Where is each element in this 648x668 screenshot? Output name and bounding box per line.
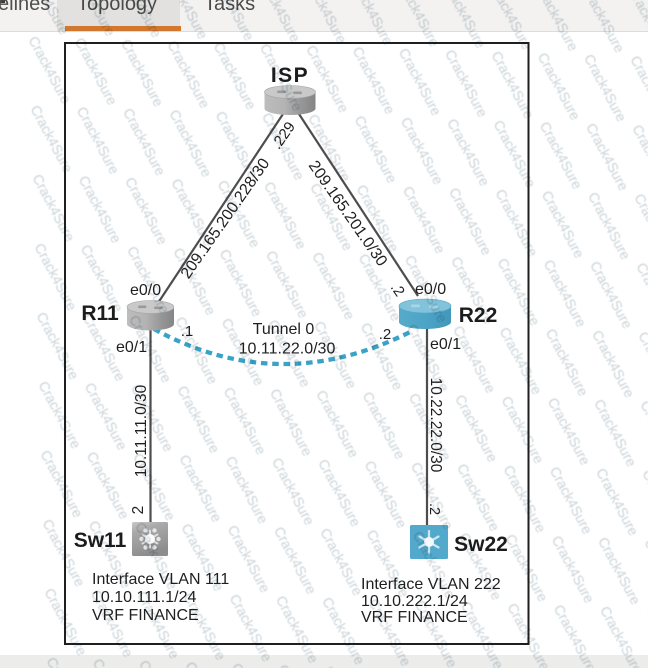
svg-text:Crack4Sure: Crack4Sure	[35, 378, 84, 451]
svg-text:Crack4Sure: Crack4Sure	[321, 663, 370, 668]
svg-text:Crack4Sure: Crack4Sure	[488, 48, 537, 121]
svg-text:Crack4Sure: Crack4Sure	[408, 459, 457, 532]
svg-text:Crack4Sure: Crack4Sure	[124, 243, 173, 316]
svg-text:Crack4Sure: Crack4Sure	[211, 39, 260, 112]
svg-text:Crack4Sure: Crack4Sure	[593, 465, 642, 538]
svg-text:Crack4Sure: Crack4Sure	[360, 389, 409, 462]
svg-text:Crack4Sure: Crack4Sure	[257, 41, 306, 114]
svg-text:Crack4Sure: Crack4Sure	[352, 113, 401, 186]
svg-text:Crack4Sure: Crack4Sure	[400, 183, 449, 256]
svg-text:Crack4Sure: Crack4Sure	[178, 521, 227, 594]
svg-text:Crack4Sure: Crack4Sure	[358, 320, 407, 393]
svg-text:Crack4Sure: Crack4Sure	[261, 179, 310, 252]
svg-text:Crack4Sure: Crack4Sure	[33, 309, 82, 382]
svg-text:Crack4Sure: Crack4Sure	[162, 0, 211, 42]
svg-text:Crack4Sure: Crack4Sure	[311, 318, 360, 391]
svg-text:Crack4Sure: Crack4Sure	[116, 0, 165, 40]
svg-text:Crack4Sure: Crack4Sure	[72, 35, 121, 108]
svg-text:Crack4Sure: Crack4Sure	[500, 462, 549, 535]
svg-text:Crack4Sure: Crack4Sure	[255, 0, 304, 45]
svg-text:Crack4Sure: Crack4Sure	[551, 602, 600, 668]
svg-text:Crack4Sure: Crack4Sure	[225, 522, 274, 595]
svg-text:Crack4Sure: Crack4Sure	[134, 588, 183, 661]
svg-text:Crack4Sure: Crack4Sure	[267, 386, 316, 459]
svg-text:Crack4Sure: Crack4Sure	[404, 321, 453, 394]
svg-text:Crack4Sure: Crack4Sure	[537, 119, 586, 192]
svg-text:Crack4Sure: Crack4Sure	[74, 104, 123, 177]
svg-text:Crack4Sure: Crack4Sure	[452, 392, 501, 465]
svg-text:Crack4Sure: Crack4Sure	[643, 605, 648, 668]
svg-text:Crack4Sure: Crack4Sure	[303, 42, 352, 115]
svg-text:Crack4Sure: Crack4Sure	[180, 590, 229, 663]
svg-text:Crack4Sure: Crack4Sure	[27, 102, 76, 175]
svg-text:Crack4Sure: Crack4Sure	[80, 311, 129, 384]
svg-text:Crack4Sure: Crack4Sure	[587, 258, 636, 331]
svg-text:Crack4Sure: Crack4Sure	[456, 530, 505, 603]
svg-text:Crack4Sure: Crack4Sure	[394, 0, 443, 49]
svg-text:Crack4Sure: Crack4Sure	[492, 186, 541, 259]
svg-text:Crack4Sure: Crack4Sure	[213, 108, 262, 181]
svg-text:Crack4Sure: Crack4Sure	[70, 0, 119, 39]
svg-text:Crack4Sure: Crack4Sure	[319, 594, 368, 667]
svg-text:Crack4Sure: Crack4Sure	[164, 38, 213, 111]
svg-text:Crack4Sure: Crack4Sure	[263, 248, 312, 321]
svg-text:Crack4Sure: Crack4Sure	[88, 587, 137, 660]
svg-text:Crack4Sure: Crack4Sure	[301, 0, 350, 46]
svg-text:Crack4Sure: Crack4Sure	[269, 455, 318, 528]
svg-text:Crack4Sure: Crack4Sure	[498, 393, 547, 466]
svg-text:Crack4Sure: Crack4Sure	[307, 180, 356, 253]
svg-text:Crack4Sure: Crack4Sure	[627, 53, 648, 126]
svg-text:Crack4Sure: Crack4Sure	[31, 240, 80, 313]
svg-text:Crack4Sure: Crack4Sure	[39, 516, 88, 589]
svg-text:Crack4Sure: Crack4Sure	[366, 596, 415, 668]
svg-text:Crack4Sure: Crack4Sure	[86, 518, 135, 591]
svg-text:Crack4Sure: Crack4Sure	[172, 314, 221, 387]
svg-text:Crack4Sure: Crack4Sure	[174, 383, 223, 456]
svg-text:Crack4Sure: Crack4Sure	[219, 315, 268, 388]
svg-text:Crack4Sure: Crack4Sure	[265, 317, 314, 390]
svg-text:Crack4Sure: Crack4Sure	[442, 47, 491, 120]
svg-text:Crack4Sure: Crack4Sure	[215, 177, 264, 250]
svg-text:Crack4Sure: Crack4Sure	[494, 255, 543, 328]
svg-text:Crack4Sure: Crack4Sure	[547, 464, 596, 537]
svg-text:Crack4Sure: Crack4Sure	[448, 254, 497, 327]
svg-text:Crack4Sure: Crack4Sure	[126, 312, 175, 385]
svg-text:Crack4Sure: Crack4Sure	[132, 519, 181, 592]
svg-text:Crack4Sure: Crack4Sure	[29, 171, 78, 244]
svg-text:Crack4Sure: Crack4Sure	[76, 173, 125, 246]
svg-text:Crack4Sure: Crack4Sure	[595, 534, 644, 607]
svg-text:Crack4Sure: Crack4Sure	[591, 396, 640, 469]
svg-text:Crack4Sure: Crack4Sure	[317, 525, 366, 598]
svg-text:Crack4Sure: Crack4Sure	[90, 656, 139, 668]
svg-text:Crack4Sure: Crack4Sure	[496, 324, 545, 397]
svg-text:Crack4Sure: Crack4Sure	[84, 449, 133, 522]
svg-text:Crack4Sure: Crack4Sure	[354, 182, 403, 255]
svg-text:Crack4Sure: Crack4Sure	[589, 327, 638, 400]
svg-text:Crack4Sure: Crack4Sure	[581, 51, 630, 124]
svg-text:Crack4Sure: Crack4Sure	[440, 0, 489, 51]
svg-text:Crack4Sure: Crack4Sure	[502, 531, 551, 604]
svg-text:Crack4Sure: Crack4Sure	[458, 599, 507, 668]
svg-text:Crack4Sure: Crack4Sure	[273, 593, 322, 666]
svg-text:Crack4Sure: Crack4Sure	[364, 527, 413, 600]
svg-text:Crack4Sure: Crack4Sure	[543, 326, 592, 399]
svg-text:Crack4Sure: Crack4Sure	[579, 0, 628, 55]
svg-text:Crack4Sure: Crack4Sure	[486, 0, 535, 52]
svg-text:Crack4Sure: Crack4Sure	[625, 0, 648, 57]
svg-text:Crack4Sure: Crack4Sure	[450, 323, 499, 396]
svg-text:Crack4Sure: Crack4Sure	[585, 189, 634, 262]
svg-text:Crack4Sure: Crack4Sure	[362, 458, 411, 531]
svg-text:Crack4Sure: Crack4Sure	[629, 122, 648, 195]
svg-text:Crack4Sure: Crack4Sure	[136, 657, 185, 668]
svg-text:Crack4Sure: Crack4Sure	[535, 50, 584, 123]
svg-text:Crack4Sure: Crack4Sure	[412, 597, 461, 668]
svg-text:Crack4Sure: Crack4Sure	[549, 533, 598, 606]
svg-text:Crack4Sure: Crack4Sure	[23, 0, 72, 37]
svg-text:Crack4Sure: Crack4Sure	[271, 524, 320, 597]
svg-text:Crack4Sure: Crack4Sure	[122, 174, 171, 247]
svg-text:Crack4Sure: Crack4Sure	[444, 116, 493, 189]
svg-text:Crack4Sure: Crack4Sure	[539, 188, 588, 261]
svg-text:Crack4Sure: Crack4Sure	[82, 380, 131, 453]
svg-text:Crack4Sure: Crack4Sure	[313, 387, 362, 460]
svg-text:Crack4Sure: Crack4Sure	[406, 390, 455, 463]
svg-text:Crack4Sure: Crack4Sure	[176, 452, 225, 525]
svg-text:Crack4Sure: Crack4Sure	[410, 528, 459, 601]
svg-text:Crack4Sure: Crack4Sure	[398, 114, 447, 187]
svg-text:Crack4Sure: Crack4Sure	[223, 453, 272, 526]
svg-text:Crack4Sure: Crack4Sure	[118, 36, 167, 109]
svg-text:Crack4Sure: Crack4Sure	[356, 251, 405, 324]
svg-text:Crack4Sure: Crack4Sure	[217, 246, 266, 319]
svg-text:Crack4Sure: Crack4Sure	[168, 176, 217, 249]
svg-text:Crack4Sure: Crack4Sure	[396, 45, 445, 118]
svg-text:Crack4Sure: Crack4Sure	[541, 257, 590, 330]
svg-text:Crack4Sure: Crack4Sure	[446, 185, 495, 258]
svg-text:Crack4Sure: Crack4Sure	[275, 662, 324, 668]
svg-text:Crack4Sure: Crack4Sure	[182, 659, 231, 668]
svg-text:Crack4Sure: Crack4Sure	[350, 44, 399, 117]
svg-text:Crack4Sure: Crack4Sure	[209, 0, 258, 43]
svg-text:Crack4Sure: Crack4Sure	[305, 111, 354, 184]
svg-text:Crack4Sure: Crack4Sure	[504, 600, 553, 668]
svg-text:Crack4Sure: Crack4Sure	[120, 105, 169, 178]
svg-text:Crack4Sure: Crack4Sure	[533, 0, 582, 54]
svg-text:Crack4Sure: Crack4Sure	[37, 447, 86, 520]
svg-text:Crack4Sure: Crack4Sure	[402, 252, 451, 325]
svg-text:Crack4Sure: Crack4Sure	[348, 0, 397, 48]
svg-text:Crack4Sure: Crack4Sure	[166, 107, 215, 180]
svg-text:Crack4Sure: Crack4Sure	[221, 384, 270, 457]
svg-text:Crack4Sure: Crack4Sure	[309, 249, 358, 322]
svg-text:Crack4Sure: Crack4Sure	[130, 450, 179, 523]
svg-text:Crack4Sure: Crack4Sure	[229, 660, 278, 668]
svg-text:Crack4Sure: Crack4Sure	[43, 654, 92, 668]
svg-text:Crack4Sure: Crack4Sure	[315, 456, 364, 529]
svg-text:Crack4Sure: Crack4Sure	[490, 117, 539, 190]
svg-text:Crack4Sure: Crack4Sure	[545, 395, 594, 468]
svg-text:Crack4Sure: Crack4Sure	[454, 461, 503, 534]
svg-text:Crack4Sure: Crack4Sure	[170, 245, 219, 318]
svg-text:Crack4Sure: Crack4Sure	[583, 120, 632, 193]
svg-text:Crack4Sure: Crack4Sure	[128, 381, 177, 454]
svg-text:Crack4Sure: Crack4Sure	[259, 110, 308, 183]
svg-text:Crack4Sure: Crack4Sure	[41, 585, 90, 658]
svg-text:Crack4Sure: Crack4Sure	[227, 591, 276, 664]
svg-text:Crack4Sure: Crack4Sure	[597, 603, 646, 668]
svg-text:Crack4Sure: Crack4Sure	[78, 242, 127, 315]
svg-text:Crack4Sure: Crack4Sure	[25, 33, 74, 106]
